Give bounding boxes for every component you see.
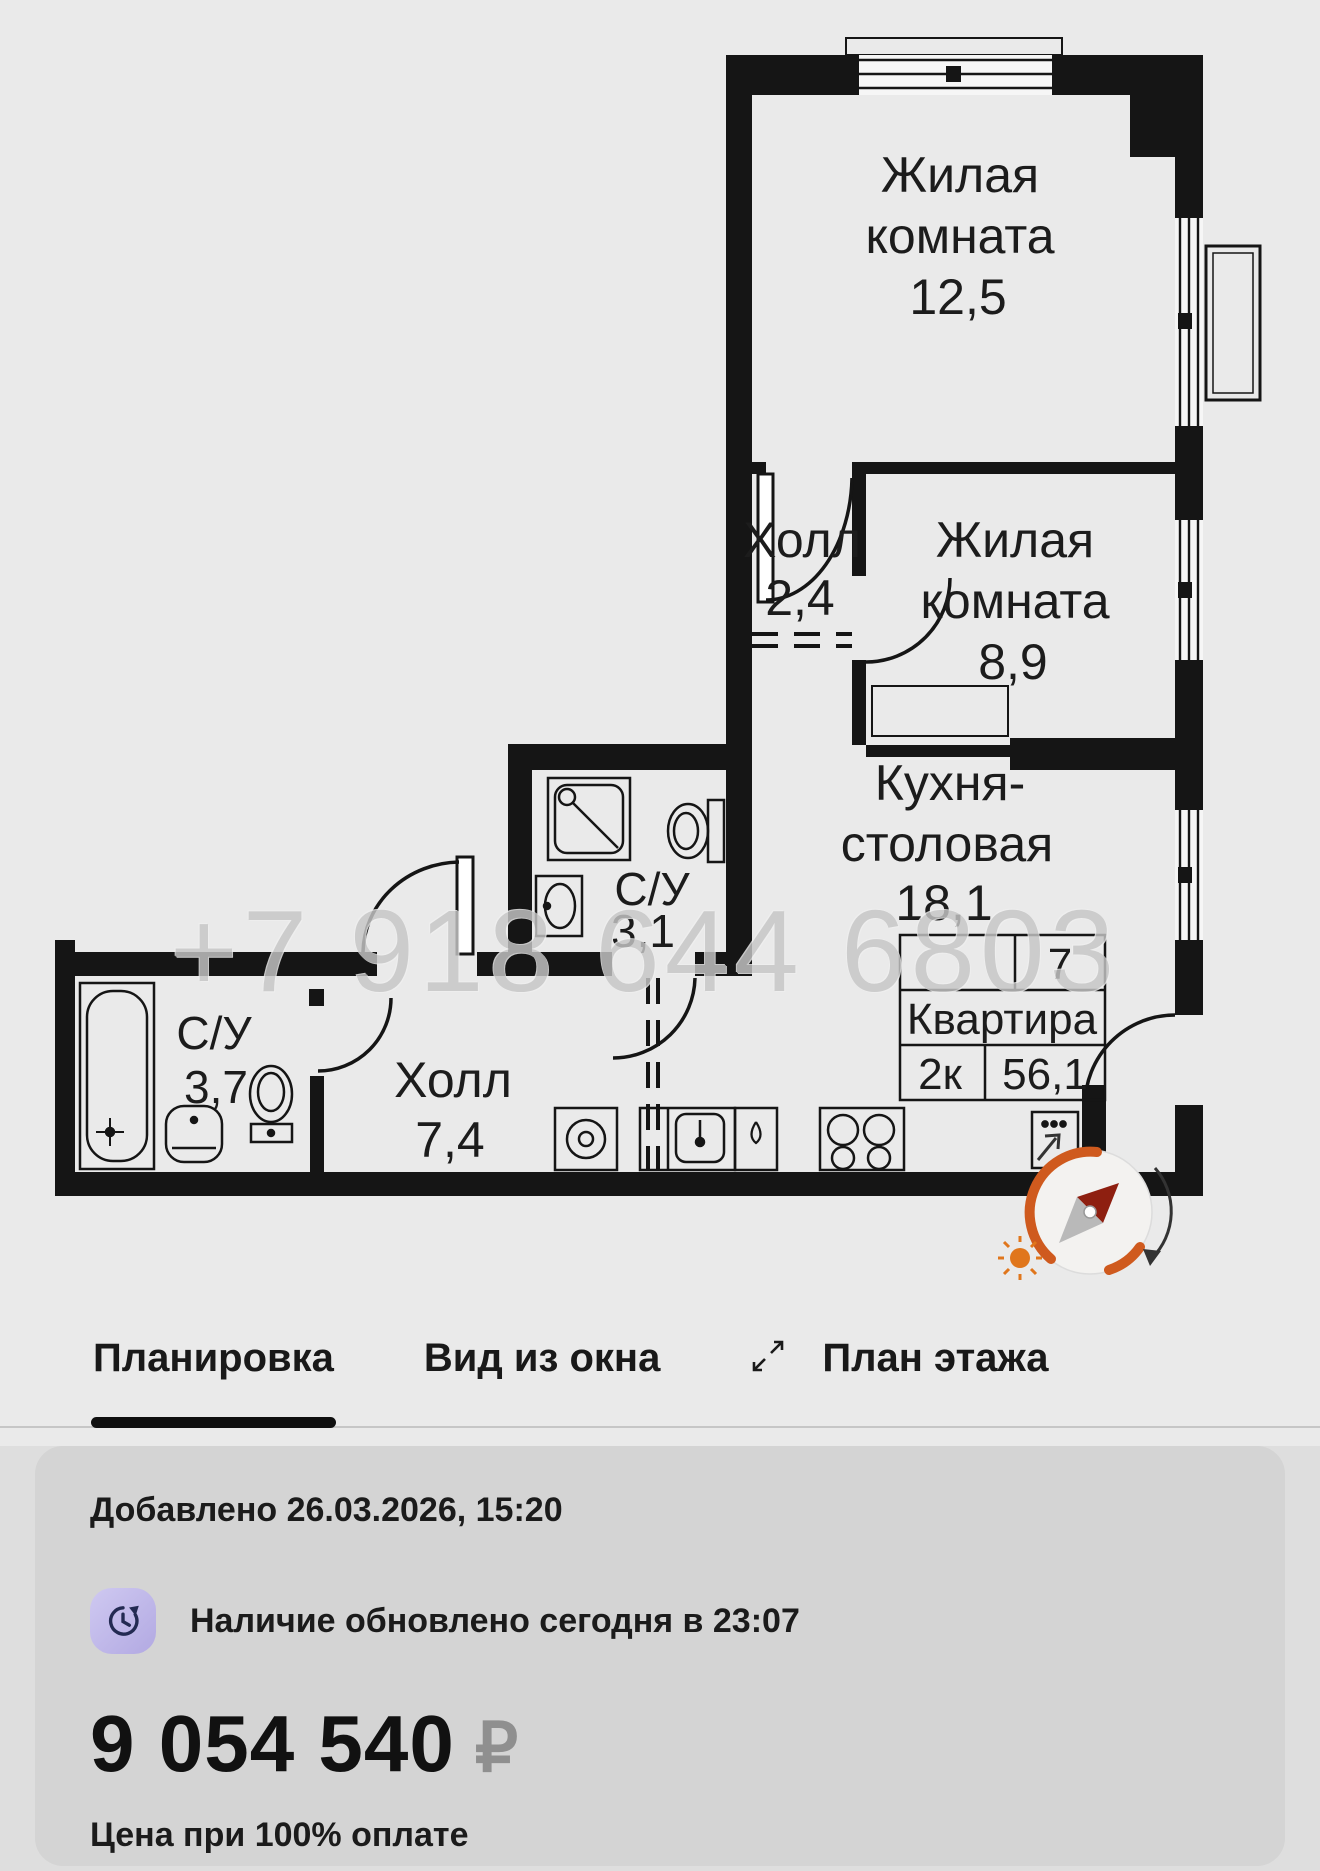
expand-icon <box>750 1338 786 1384</box>
label-living2: Жилая комната 8,9 <box>920 512 1109 690</box>
window-kitchen <box>1175 810 1203 940</box>
svg-text:С/У: С/У <box>176 1007 252 1059</box>
tab-window-view[interactable]: Вид из окна <box>424 1336 660 1428</box>
svg-text:7,4: 7,4 <box>415 1112 485 1168</box>
added-date: Добавлено 26.03.2026, 15:20 <box>90 1491 1230 1530</box>
toilet-icon <box>250 1066 292 1142</box>
window-living1 <box>1175 218 1260 426</box>
svg-text:18,1: 18,1 <box>895 875 992 931</box>
details-card: Добавлено 26.03.2026, 15:20 Наличие обно… <box>35 1446 1285 1866</box>
tab-window-view-label: Вид из окна <box>424 1336 660 1381</box>
compass-icon <box>998 1135 1171 1280</box>
tab-floor-plan-label: План этажа <box>822 1336 1048 1381</box>
tab-layout[interactable]: Планировка <box>93 1336 334 1428</box>
window-living2 <box>1175 520 1203 660</box>
toilet-icon <box>668 800 724 862</box>
gallery-tabs: Планировка Вид из окна План этажа <box>0 1310 1320 1428</box>
stamp-rooms: 2к <box>918 1050 962 1099</box>
label-kitchen: Кухня- столовая 18,1 <box>841 755 1053 931</box>
label-living1: Жилая комната 12,5 <box>865 147 1054 325</box>
door-wc-small <box>613 978 695 1058</box>
label-wc-big: С/У 3,7 <box>176 1007 252 1113</box>
price-row: 9 054 540 ₽ <box>90 1698 1230 1790</box>
availability-text: Наличие обновлено сегодня в 23:07 <box>190 1602 800 1641</box>
svg-text:Холл: Холл <box>743 512 861 568</box>
sun-icon <box>998 1236 1042 1280</box>
svg-text:3,1: 3,1 <box>611 905 675 957</box>
door-wc-big <box>318 998 391 1071</box>
svg-text:2,4: 2,4 <box>765 570 835 626</box>
availability-row: Наличие обновлено сегодня в 23:07 <box>90 1588 1230 1654</box>
stamp-floor: 7 <box>1048 940 1072 989</box>
details-section: Добавлено 26.03.2026, 15:20 Наличие обно… <box>0 1446 1320 1871</box>
washer-icon <box>555 1108 617 1170</box>
label-wc-small: С/У 3,1 <box>611 863 690 957</box>
shower-icon <box>548 778 630 860</box>
svg-text:Холл: Холл <box>394 1052 512 1108</box>
tab-floor-plan[interactable]: План этажа <box>750 1336 1048 1428</box>
stamp-table: 7 Квартира 2к 56,1 <box>900 935 1105 1100</box>
svg-text:Жилая: Жилая <box>936 512 1094 568</box>
wardrobe-icon <box>872 686 1008 736</box>
svg-text:12,5: 12,5 <box>909 269 1006 325</box>
svg-text:столовая: столовая <box>841 816 1053 872</box>
svg-text:Кухня-: Кухня- <box>875 755 1025 811</box>
sink-icon <box>536 876 582 936</box>
stamp-area: 56,1 <box>1002 1050 1088 1099</box>
svg-text:3,7: 3,7 <box>184 1061 248 1113</box>
tab-layout-label: Планировка <box>93 1336 334 1381</box>
svg-text:8,9: 8,9 <box>978 634 1048 690</box>
sink-counter-icon <box>640 1108 735 1170</box>
drop-panel-icon <box>735 1108 777 1170</box>
sink-icon <box>166 1106 222 1162</box>
svg-text:Жилая: Жилая <box>881 147 1039 203</box>
price-note: Цена при 100% оплате <box>90 1816 1230 1855</box>
bathtub-icon <box>80 983 154 1169</box>
clock-icon <box>90 1588 156 1654</box>
hob-icon <box>820 1108 904 1170</box>
window-top <box>846 38 1062 95</box>
price-amount: 9 054 540 <box>90 1698 455 1790</box>
svg-text:комната: комната <box>920 573 1109 629</box>
label-hall-big: Холл 7,4 <box>394 1052 512 1168</box>
ruble-sign: ₽ <box>475 1709 518 1788</box>
floor-plan-drawing: 7 Квартира 2к 56,1 Жилая комната 12,5 Жи… <box>0 0 1320 1310</box>
stamp-label: Квартира <box>907 995 1098 1044</box>
door-entrance <box>363 857 473 954</box>
svg-text:комната: комната <box>865 208 1054 264</box>
floor-plan-viewer[interactable]: 7 Квартира 2к 56,1 Жилая комната 12,5 Жи… <box>0 0 1320 1310</box>
